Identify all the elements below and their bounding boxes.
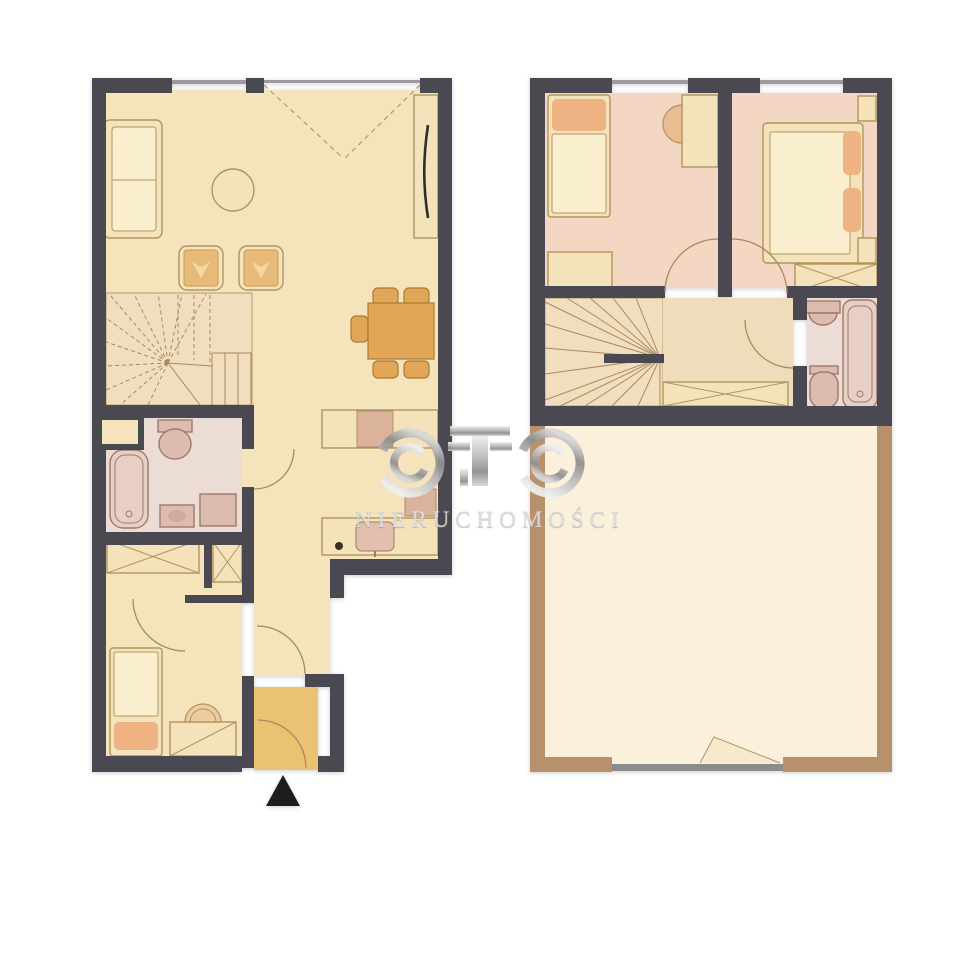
stove <box>357 411 393 447</box>
sofa <box>104 120 162 238</box>
dining-chair <box>404 361 429 378</box>
coffee-table <box>212 169 254 211</box>
closet-niche <box>213 542 242 582</box>
cabinet <box>548 252 612 288</box>
dining-table <box>368 303 434 359</box>
entrance-arrow <box>266 775 300 806</box>
nightstand-bottom <box>858 238 876 263</box>
double-bed <box>763 123 863 263</box>
hall-floor <box>254 545 330 676</box>
floorplan-image: NIERUCHOMOŚCI <box>0 0 960 960</box>
window <box>760 80 843 84</box>
window <box>172 80 246 84</box>
floorplans-svg <box>0 0 960 960</box>
washbasin-counter <box>806 301 840 313</box>
window <box>612 80 688 84</box>
tall-cabinet <box>414 95 438 238</box>
single-bed <box>548 95 610 217</box>
upper-floor-plan <box>530 78 892 772</box>
desk <box>170 722 236 756</box>
ground-floor-plan <box>92 78 452 806</box>
kitchen-sink <box>356 522 394 551</box>
dining-chair <box>351 316 368 342</box>
dining-chair <box>373 361 398 378</box>
armchair-right <box>239 246 283 290</box>
terrace-sliding-door <box>612 764 783 771</box>
knob <box>335 542 343 550</box>
washing-machine <box>200 494 236 526</box>
dishwasher <box>405 489 436 516</box>
stairs-handrail <box>604 354 664 363</box>
wall-niche <box>102 420 138 444</box>
upper-bedroom-right <box>763 96 877 292</box>
landing-wardrobe <box>663 382 788 406</box>
desk <box>682 95 718 167</box>
terrace <box>530 426 892 772</box>
toilet <box>159 429 191 459</box>
toilet <box>810 372 838 408</box>
single-bed <box>110 648 162 756</box>
armchair-left <box>179 246 223 290</box>
balcony-door-frame <box>264 80 420 83</box>
terrace-floor <box>545 426 877 764</box>
nightstand-top <box>858 96 876 121</box>
